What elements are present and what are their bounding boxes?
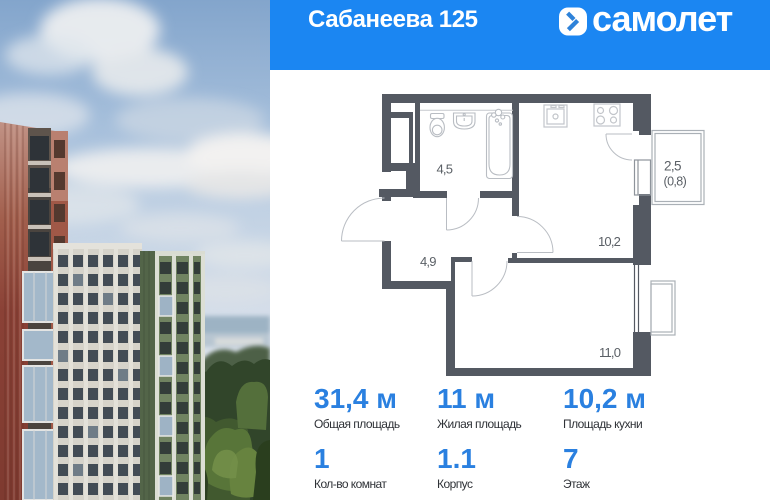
svg-text:самолет: самолет bbox=[592, 0, 733, 39]
svg-text:4,9: 4,9 bbox=[420, 254, 436, 269]
svg-text:2,5: 2,5 bbox=[664, 159, 681, 174]
svg-text:10,2: 10,2 bbox=[598, 234, 621, 249]
svg-text:4,5: 4,5 bbox=[437, 162, 453, 177]
svg-text:11,0: 11,0 bbox=[599, 345, 621, 360]
svg-text:(0,8): (0,8) bbox=[664, 175, 687, 189]
